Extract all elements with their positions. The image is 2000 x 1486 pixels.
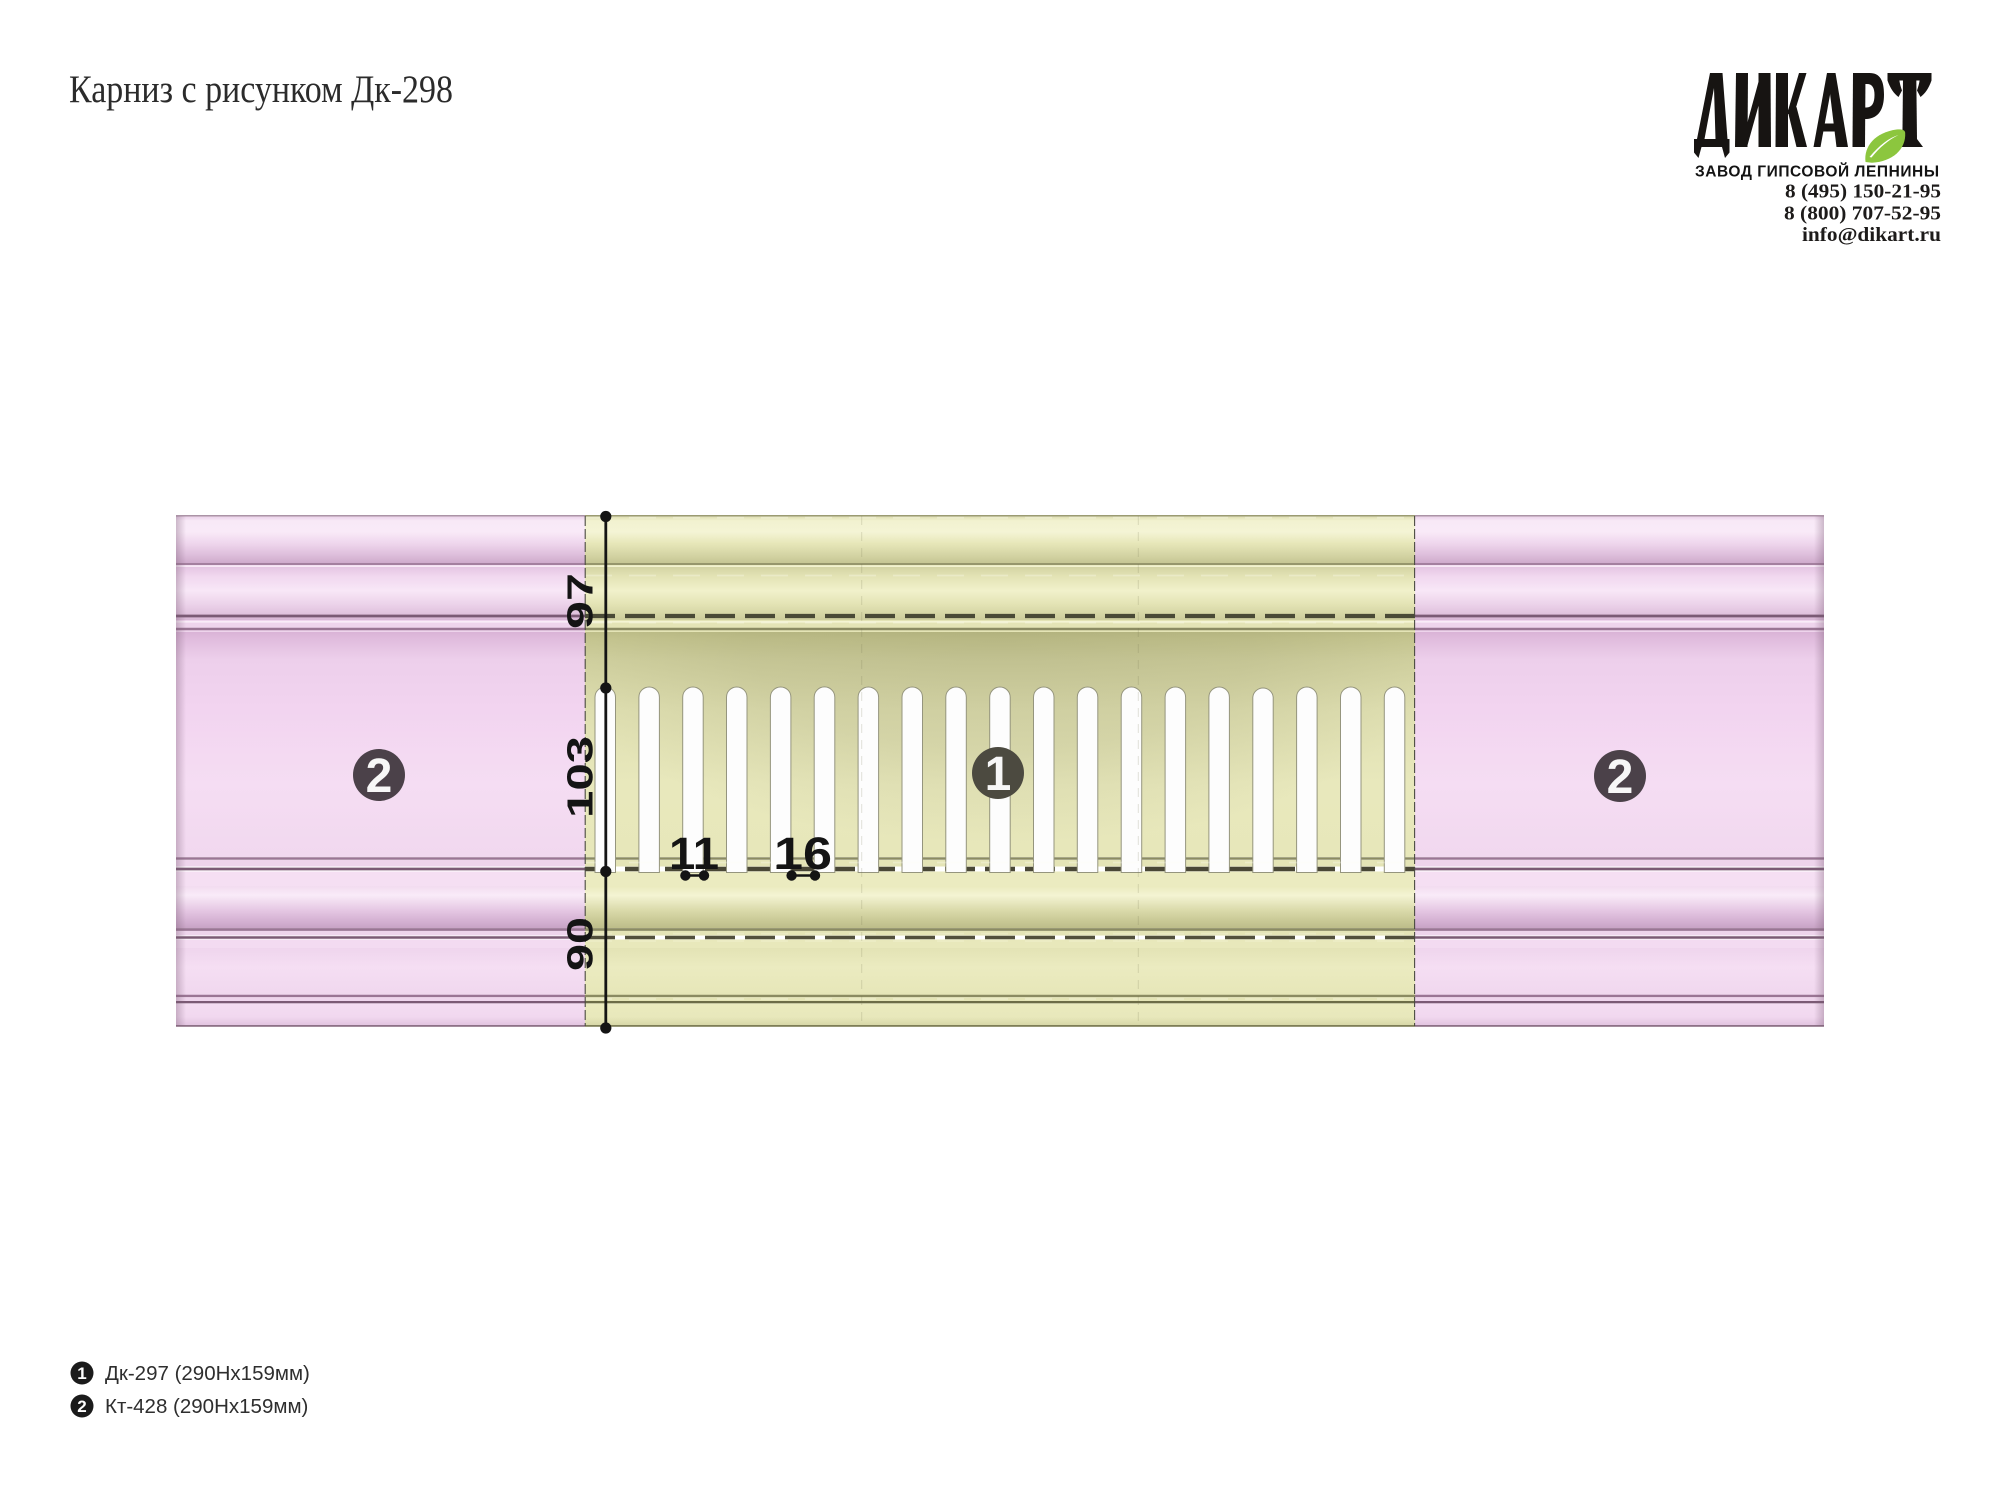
svg-text:97: 97: [560, 573, 601, 629]
svg-text:16: 16: [774, 828, 832, 879]
svg-text:90: 90: [560, 917, 601, 971]
svg-text:1: 1: [985, 748, 1012, 801]
svg-text:8 (800) 707-52-95: 8 (800) 707-52-95: [1784, 204, 1941, 225]
svg-text:11: 11: [669, 828, 719, 879]
svg-text:Карниз с рисунком Дк-298: Карниз с рисунком Дк-298: [69, 68, 453, 111]
svg-text:2: 2: [366, 750, 393, 803]
svg-text:Дк-297 (290Нх159мм): Дк-297 (290Нх159мм): [105, 1362, 310, 1385]
svg-text:2: 2: [77, 1397, 86, 1416]
svg-text:1: 1: [77, 1364, 86, 1383]
svg-text:Кт-428 (290Нх159мм): Кт-428 (290Нх159мм): [105, 1395, 308, 1418]
svg-text:info@dikart.ru: info@dikart.ru: [1802, 225, 1941, 246]
svg-text:ЗАВОД ГИПСОВОЙ ЛЕПНИНЫ: ЗАВОД ГИПСОВОЙ ЛЕПНИНЫ: [1695, 163, 1939, 181]
svg-text:2: 2: [1607, 751, 1634, 804]
svg-text:103: 103: [560, 736, 601, 818]
svg-text:8 (495) 150-21-95: 8 (495) 150-21-95: [1785, 182, 1941, 203]
